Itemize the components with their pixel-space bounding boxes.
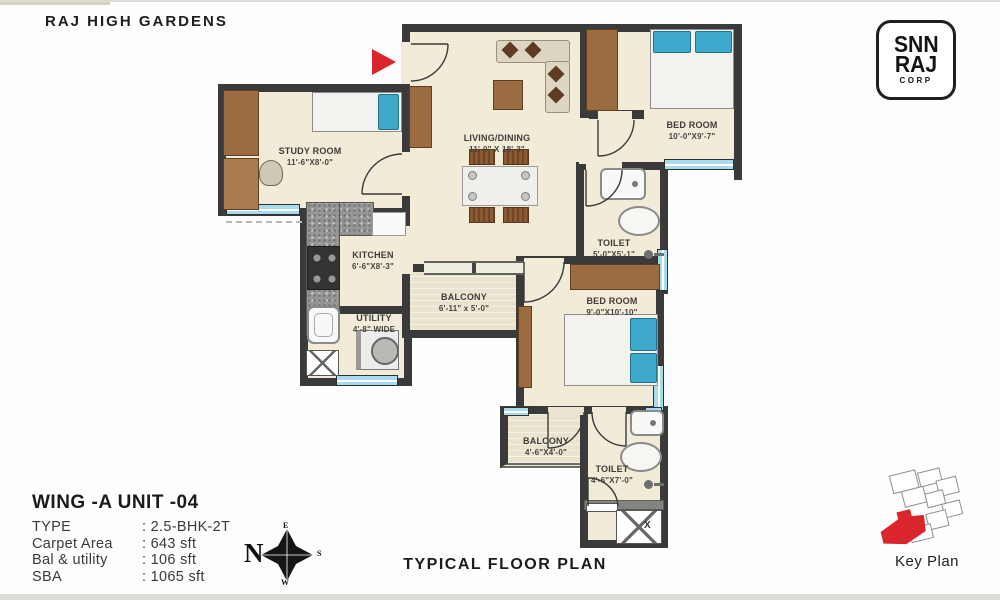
pillow-icon bbox=[630, 353, 657, 383]
washing-machine-icon bbox=[356, 330, 399, 370]
wardrobe-icon bbox=[586, 29, 618, 111]
table-leg-icon bbox=[521, 171, 530, 180]
dining-chair-icon bbox=[469, 207, 495, 223]
wash-basin-icon bbox=[630, 410, 664, 436]
table-leg-icon bbox=[521, 192, 530, 201]
info-value: : 643 sft bbox=[142, 536, 196, 553]
coffee-table-icon bbox=[493, 80, 523, 110]
window-bedroom1 bbox=[664, 159, 734, 170]
floor-plan-page: RAJ HIGH GARDENS SNN RAJ CORP bbox=[0, 0, 1000, 600]
key-plan-highlight bbox=[877, 506, 930, 549]
shaft-x-icon bbox=[616, 510, 662, 544]
opening-bedroom1 bbox=[598, 111, 632, 119]
key-plan-label: Key Plan bbox=[868, 553, 986, 570]
entrance-arrow-icon bbox=[372, 49, 396, 75]
label-utility: UTILITY 4'-8" WIDE bbox=[353, 313, 395, 335]
info-label: Carpet Area bbox=[32, 536, 142, 553]
shaft-label: X bbox=[644, 520, 651, 531]
snn-raj-corp-logo: SNN RAJ CORP bbox=[876, 20, 956, 100]
opening-bedroom2 bbox=[524, 258, 564, 267]
info-row: TYPE : 2.5-BHK-2T bbox=[32, 519, 230, 536]
table-leg-icon bbox=[468, 171, 477, 180]
opening-study bbox=[401, 152, 412, 196]
label-living-dining: LIVING/DINING 11'-0" X 18'-3" bbox=[464, 133, 531, 155]
compass-rose-icon bbox=[258, 526, 316, 584]
label-bedroom-2: BED ROOM 9'-0"X10'-10" bbox=[586, 296, 637, 318]
stove-icon bbox=[307, 246, 340, 290]
plan-type-title: TYPICAL FLOOR PLAN bbox=[355, 556, 655, 574]
fridge-icon bbox=[372, 212, 406, 236]
logo-line3: CORP bbox=[899, 76, 932, 85]
label-toilet-1: TOILET 5'-0"X5'-1" bbox=[593, 238, 635, 260]
info-label: SBA bbox=[32, 569, 142, 586]
door-leaf-icon bbox=[586, 503, 618, 512]
compass-north-label: N bbox=[244, 538, 264, 569]
info-value: : 2.5-BHK-2T bbox=[142, 519, 230, 536]
info-row: Carpet Area : 643 sft bbox=[32, 536, 230, 553]
window-balcony2 bbox=[503, 407, 529, 416]
table-leg-icon bbox=[468, 192, 477, 201]
info-value: : 1065 sft bbox=[142, 569, 205, 586]
foyer-unit-icon bbox=[409, 86, 432, 148]
opening-balcony2 bbox=[548, 407, 584, 415]
tv-unit-icon bbox=[518, 306, 532, 388]
info-label: Bal & utility bbox=[32, 552, 142, 569]
top-edge-line bbox=[0, 0, 1000, 2]
label-kitchen: KITCHEN 6'-6"X8'-3" bbox=[352, 250, 394, 272]
pillow-icon bbox=[653, 31, 691, 53]
info-row: Bal & utility : 106 sft bbox=[32, 552, 230, 569]
shower-icon bbox=[644, 480, 653, 489]
opening-entrance bbox=[401, 42, 412, 84]
bottom-edge-line bbox=[0, 594, 1000, 600]
logo-line2: RAJ bbox=[895, 55, 937, 75]
pillow-icon bbox=[378, 94, 399, 130]
label-balcony-1: BALCONY 6'-11" x 5'-0" bbox=[439, 292, 489, 314]
wardrobe-icon bbox=[223, 90, 259, 156]
study-window-sill-dash bbox=[226, 221, 302, 223]
label-bedroom-1: BED ROOM 10'-0"X9'-7" bbox=[666, 120, 717, 142]
unit-title: WING -A UNIT -04 bbox=[32, 492, 230, 514]
dining-chair-icon bbox=[503, 207, 529, 223]
study-desk-icon bbox=[223, 158, 259, 210]
label-toilet-2: TOILET 4'-6"X7'-0" bbox=[591, 464, 633, 486]
compass-east-label: E bbox=[283, 521, 288, 530]
window-utility bbox=[336, 375, 398, 386]
sliding-door-post bbox=[472, 263, 476, 273]
toilet-icon bbox=[618, 206, 660, 236]
label-study-room: STUDY ROOM 11'-6"X8'-0" bbox=[279, 146, 342, 168]
unit-info-block: WING -A UNIT -04 TYPE : 2.5-BHK-2T Carpe… bbox=[32, 492, 230, 585]
sliding-door-balcony1 bbox=[424, 261, 524, 275]
pillow-icon bbox=[695, 31, 732, 53]
shaft-x-icon bbox=[306, 350, 339, 376]
wall-bedroom1-corner bbox=[734, 168, 742, 180]
compass-west-label: W bbox=[281, 578, 289, 587]
project-title: RAJ HIGH GARDENS bbox=[45, 13, 228, 30]
info-label: TYPE bbox=[32, 519, 142, 536]
compass-south-label: S bbox=[317, 549, 321, 558]
wash-basin-icon bbox=[600, 168, 646, 200]
label-balcony-2: BALCONY 4'-6"X4'-0" bbox=[523, 436, 569, 458]
opening-toilet2 bbox=[592, 407, 626, 415]
key-plan-map bbox=[868, 462, 986, 552]
opening-lobby bbox=[579, 118, 589, 164]
info-value: : 106 sft bbox=[142, 552, 196, 569]
pillow-icon bbox=[630, 318, 657, 351]
shower-icon bbox=[644, 250, 653, 259]
wardrobe-icon bbox=[570, 264, 660, 290]
sink-icon bbox=[307, 306, 340, 344]
info-row: SBA : 1065 sft bbox=[32, 569, 230, 586]
